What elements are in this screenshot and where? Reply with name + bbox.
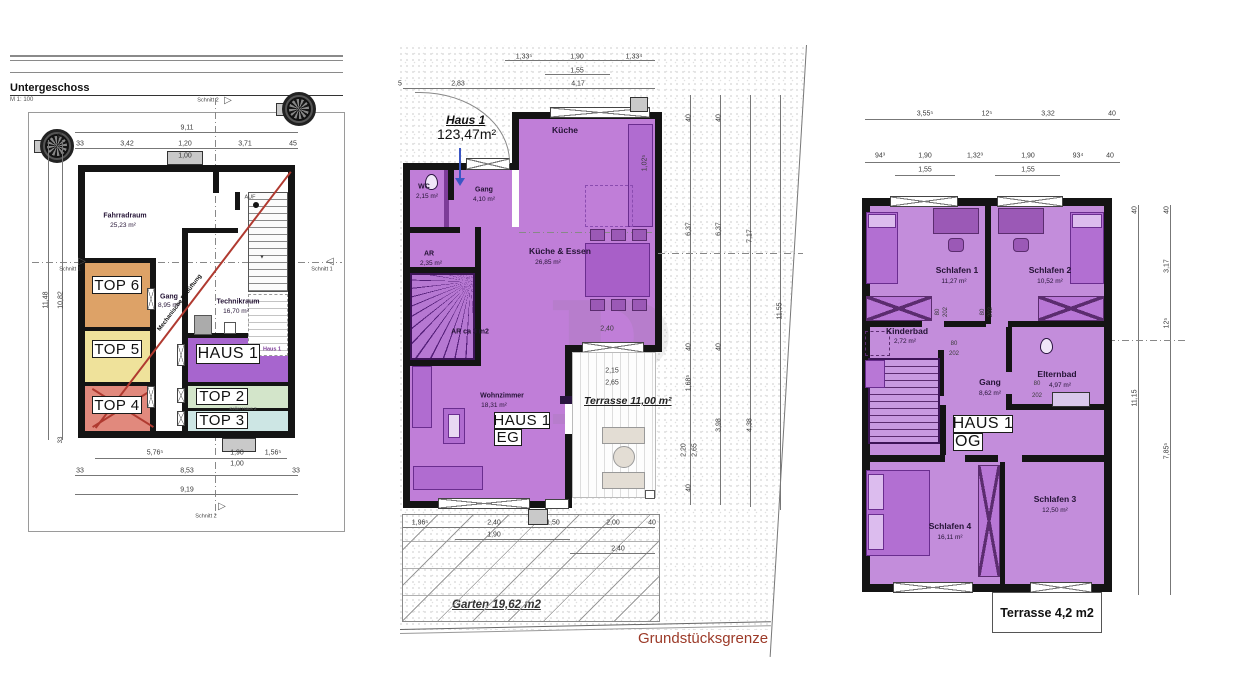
dimension-label: 12⁵ <box>982 111 993 118</box>
dimension-label: 12⁵ <box>1164 318 1171 329</box>
text-label: Schlafen 4 <box>929 522 972 531</box>
text-label: 11,27 m² <box>941 279 966 286</box>
text-label: Schlafen 2 <box>1029 266 1072 275</box>
dimension-label: 1,90 <box>1021 153 1035 160</box>
dimension-label: 40 <box>1132 206 1139 214</box>
dimension-label: 7,85⁵ <box>1164 443 1171 460</box>
text-label: Schlafen 1 <box>936 266 979 275</box>
dimension-label: 3,17 <box>1164 259 1171 273</box>
dimension-label: 202 <box>949 351 959 357</box>
dimension-label: 1,55 <box>1021 167 1035 174</box>
dimension-label: 202 <box>943 307 949 317</box>
dimension-label: 11,15 <box>1132 390 1139 407</box>
floorplan-sheet: Untergeschoss M 1: 100 <box>0 0 1236 700</box>
text-label: Elternbad <box>1037 370 1076 379</box>
text-label: 12,50 m² <box>1042 508 1068 515</box>
dimension-label: 202 <box>1032 393 1042 399</box>
dimension-label: 80 <box>1034 381 1041 387</box>
dimension-label: 80 <box>935 309 941 316</box>
dimension-label: 1,90 <box>918 153 932 160</box>
og-labels-layer: 3,55⁵12⁵3,324094³1,901,32³1,9093⁴401,551… <box>0 0 1236 700</box>
text-label: 16,11 m² <box>937 535 962 542</box>
text-label: 8,62 m² <box>979 391 1001 398</box>
text-label: Schlafen 3 <box>1034 495 1077 504</box>
text-label: 2,72 m² <box>894 339 916 346</box>
dimension-label: 40 <box>1106 153 1114 160</box>
dimension-label: 80 <box>980 309 986 316</box>
dimension-label: 1,55 <box>918 167 932 174</box>
dimension-label: 202 <box>988 307 994 317</box>
text-label: Kinderbad <box>886 327 928 336</box>
dimension-label: 3,32 <box>1041 111 1055 118</box>
dimension-label: 40 <box>1108 111 1116 118</box>
text-label: Gang <box>979 378 1001 387</box>
dimension-label: 94³ <box>875 153 885 160</box>
text-label: 10,52 m² <box>1037 279 1063 286</box>
dimension-label: 80 <box>951 341 958 347</box>
dimension-label: 40 <box>1164 206 1171 214</box>
dimension-label: 93⁴ <box>1073 153 1084 160</box>
text-label: 4,97 m² <box>1049 383 1071 390</box>
dimension-label: 3,55⁵ <box>917 111 934 118</box>
dimension-label: 1,32³ <box>967 153 983 160</box>
